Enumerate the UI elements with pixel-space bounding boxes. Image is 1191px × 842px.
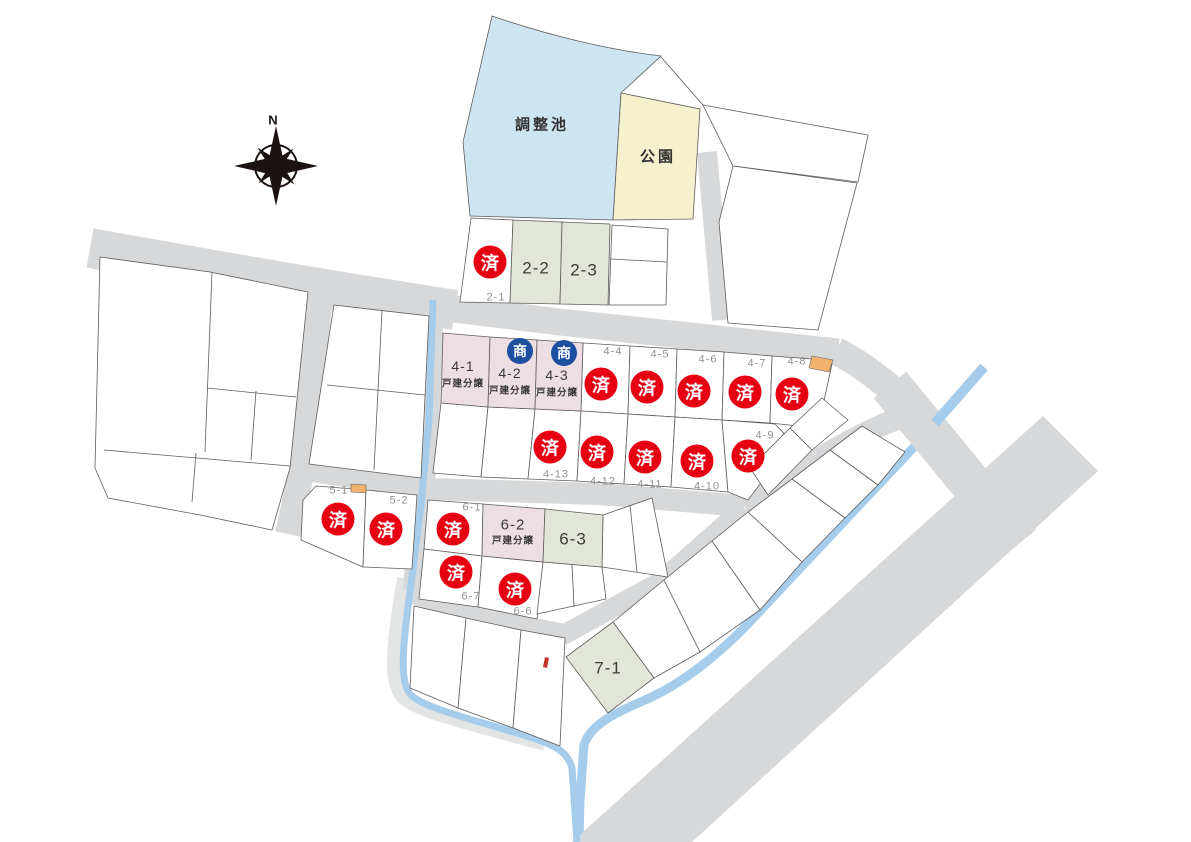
lot-6-2 [482, 504, 545, 562]
lot-4-3 [535, 340, 583, 411]
park-area [613, 93, 700, 220]
lot-4-2 [488, 337, 537, 409]
lot-4-1 [441, 333, 490, 407]
lot-2-3 [560, 222, 610, 305]
orange-mark-5-1 [351, 484, 366, 493]
lot-6-3 [543, 509, 603, 567]
map-drawing [0, 0, 1191, 842]
lot-map: N 調整池 公園 済 2-1 2-2 2-3 4-1 戸建分譲 商 4-2 戸建… [0, 0, 1191, 842]
road-park-connector [707, 152, 722, 320]
compass-rose [234, 126, 318, 206]
lot-2-2 [510, 220, 562, 304]
stream-east-upper [935, 367, 984, 423]
